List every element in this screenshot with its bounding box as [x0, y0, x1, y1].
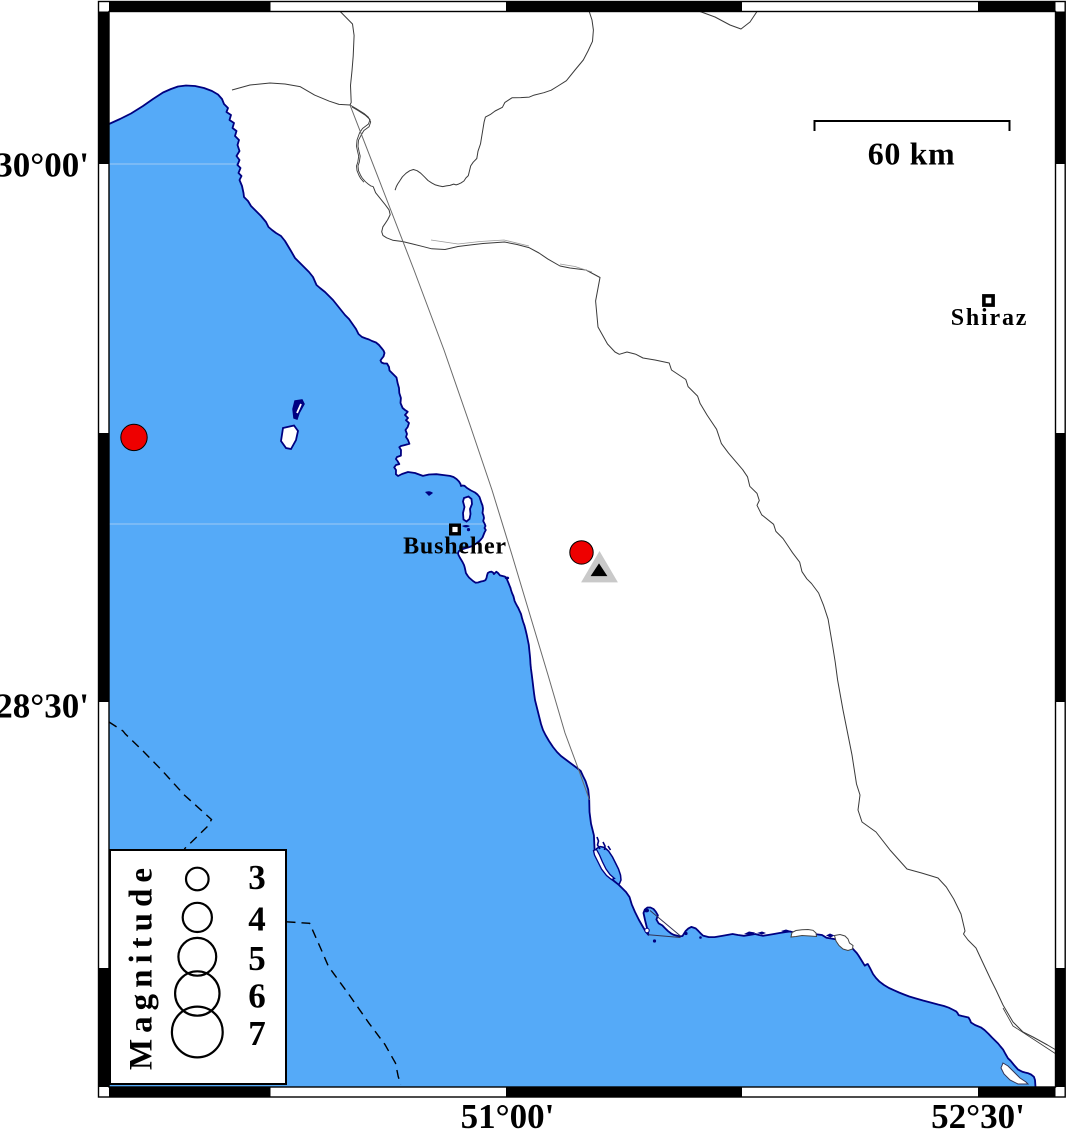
svg-text:Magnitude: Magnitude [124, 862, 160, 1070]
svg-text:52°30': 52°30' [931, 1097, 1025, 1134]
svg-text:Shiraz: Shiraz [951, 305, 1028, 331]
svg-text:3: 3 [248, 858, 266, 897]
svg-text:28°30': 28°30' [0, 687, 89, 726]
svg-text:5: 5 [248, 939, 266, 978]
svg-text:60 km: 60 km [868, 136, 955, 172]
svg-text:7: 7 [248, 1014, 266, 1053]
svg-text:30°00': 30°00' [0, 146, 89, 185]
svg-text:51°00': 51°00' [461, 1097, 555, 1134]
svg-text:Busheher: Busheher [403, 534, 507, 560]
svg-text:4: 4 [248, 900, 266, 939]
svg-text:6: 6 [248, 977, 266, 1016]
